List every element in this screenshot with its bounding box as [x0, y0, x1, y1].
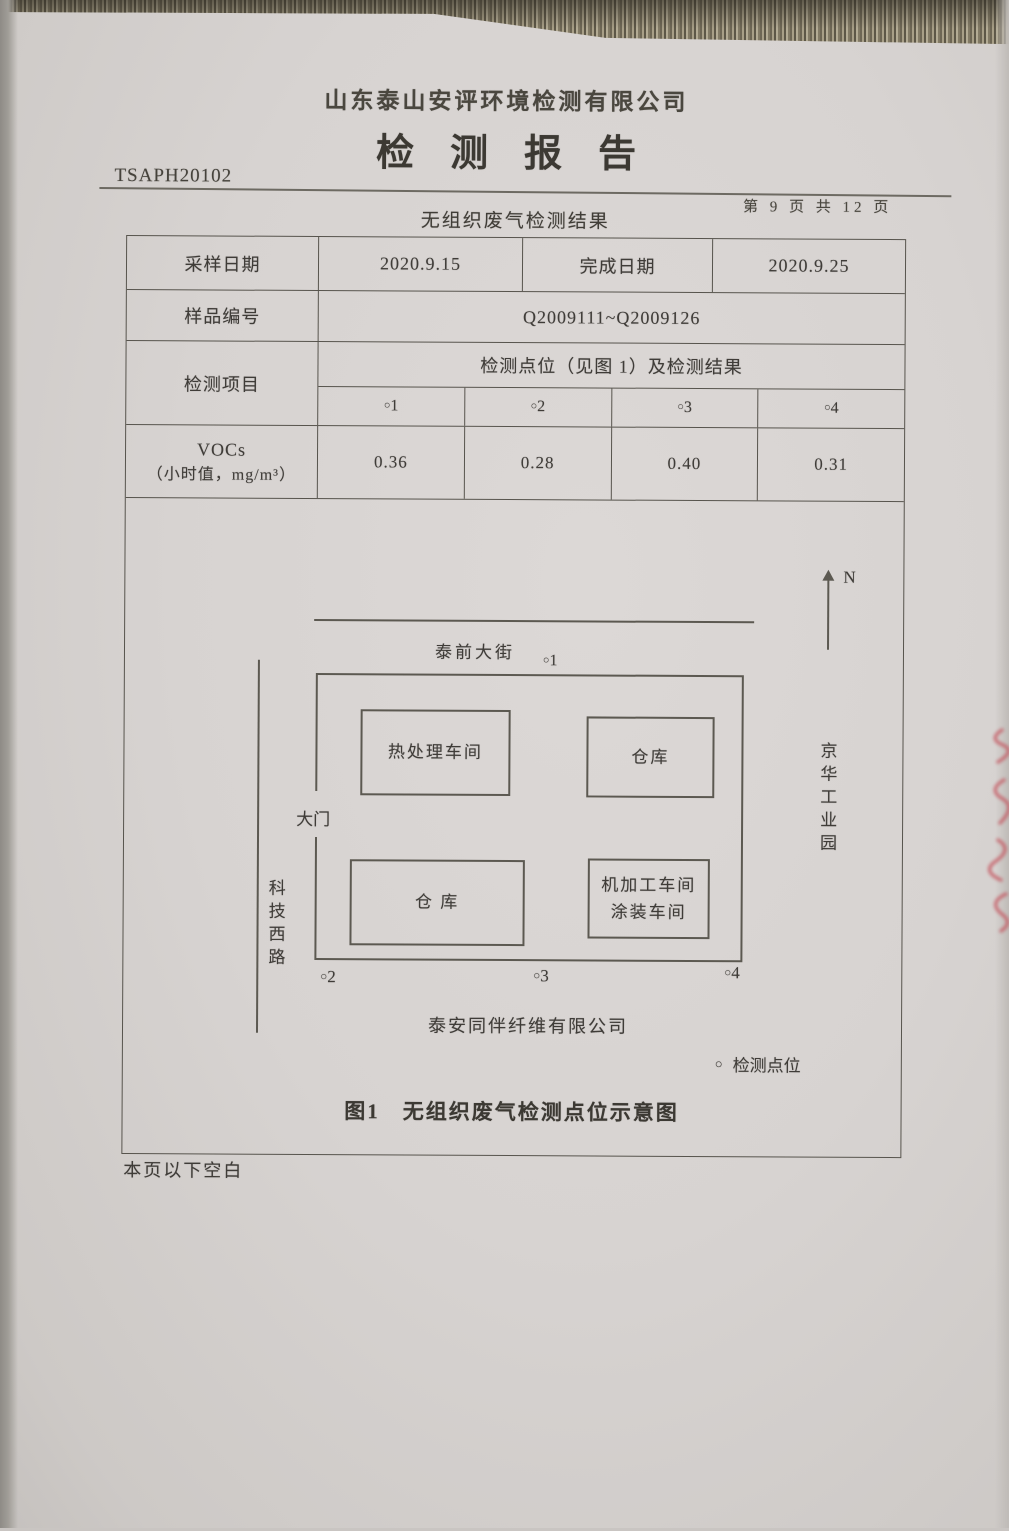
monitor-point-1: ○1 — [543, 652, 558, 670]
voc-value-2: 0.28 — [464, 427, 611, 500]
left-road-line — [256, 660, 260, 1033]
sampling-date-label: 采样日期 — [127, 236, 318, 290]
north-label: N — [843, 568, 855, 588]
figure-caption: 图1 无组织废气检测点位示意图 — [123, 1094, 901, 1128]
building-warehouse-bottom: 仓 库 — [349, 859, 524, 946]
completion-date-value: 2020.9.25 — [712, 239, 905, 293]
monitor-point-3: ○3 — [533, 966, 549, 986]
point-header-4-text: ○4 — [824, 400, 839, 418]
voc-label-cell: VOCs （小时值，mg/m³） — [126, 425, 317, 498]
voc-name: VOCs — [197, 436, 246, 463]
building-machining-painting: 机加工车间 涂装车间 — [587, 858, 709, 939]
voc-value-4: 0.31 — [757, 428, 904, 501]
document-number: TSAPH20102 — [114, 165, 232, 188]
table-row-sample-id: 样品编号 Q2009111~Q2009126 — [127, 289, 905, 344]
sample-id-value: Q2009111~Q2009126 — [318, 291, 905, 344]
legend: ○ 检测点位 — [715, 1051, 801, 1076]
building-warehouse-top: 仓库 — [586, 716, 714, 798]
section-title: 无组织废气检测结果 — [126, 204, 904, 235]
scanned-report-page: 山东泰山安评环境检测有限公司 检测报告 TSAPH20102 第 9 页 共 1… — [0, 0, 1009, 1531]
point-header-2-text: ○2 — [531, 398, 546, 416]
point-header-4: ○4 — [757, 390, 904, 428]
legend-label: 检测点位 — [733, 1051, 801, 1076]
table-row-voc: VOCs （小时值，mg/m³） 0.36 0.28 0.40 0.31 — [126, 424, 904, 501]
monitor-point-4: ○4 — [724, 963, 740, 983]
completion-date-label: 完成日期 — [522, 238, 712, 292]
building-machining-label: 机加工车间 — [601, 871, 696, 899]
below-blank-note: 本页以下空白 — [123, 1156, 243, 1183]
table-row-test-item: 检测项目 检测点位（见图 1）及检测结果 ○1 ○2 ○3 ○4 — [126, 340, 904, 428]
site-diagram: N 泰前大街 ○1 大门 热处理车间 仓库 仓 库 机加工车间 涂装车间 京华工… — [122, 497, 903, 1157]
sample-id-label: 样品编号 — [127, 290, 318, 341]
point-header-3: ○3 — [611, 389, 758, 427]
sampling-date-value: 2020.9.15 — [318, 237, 522, 291]
company-name: 山东泰山安评环境检测有限公司 — [2, 79, 1009, 118]
test-item-right-block: 检测点位（见图 1）及检测结果 ○1 ○2 ○3 ○4 — [317, 342, 904, 428]
point-header-1: ○1 — [318, 387, 464, 425]
site-company-label: 泰安同伴纤维有限公司 — [314, 1011, 742, 1039]
point-header-3-text: ○3 — [677, 399, 692, 417]
top-street-line — [314, 619, 754, 623]
building-heat-treatment: 热处理车间 — [360, 709, 510, 796]
results-table: 采样日期 2020.9.15 完成日期 2020.9.25 样品编号 Q2009… — [121, 235, 906, 1158]
building-painting-label: 涂装车间 — [611, 899, 687, 927]
north-arrow-line — [827, 580, 829, 650]
legend-point-icon: ○ — [715, 1056, 723, 1072]
result-header: 检测点位（见图 1）及检测结果 — [318, 342, 904, 390]
right-area-label: 京华工业园 — [814, 742, 840, 857]
point-header-1-text: ○1 — [384, 398, 399, 416]
monitor-point-2: ○2 — [320, 967, 336, 987]
voc-value-3: 0.40 — [610, 428, 757, 501]
voc-unit: （小时值，mg/m³） — [147, 463, 296, 488]
voc-value-1: 0.36 — [317, 426, 464, 499]
top-street-label: 泰前大街 — [435, 638, 515, 663]
point-header-row: ○1 ○2 ○3 ○4 — [318, 386, 904, 428]
left-road-label: 科技西路 — [262, 879, 287, 971]
table-row-dates: 采样日期 2020.9.15 完成日期 2020.9.25 — [127, 236, 905, 293]
point-header-2: ○2 — [464, 388, 611, 426]
test-item-label: 检测项目 — [126, 341, 317, 425]
gate-label: 大门 — [296, 805, 330, 830]
